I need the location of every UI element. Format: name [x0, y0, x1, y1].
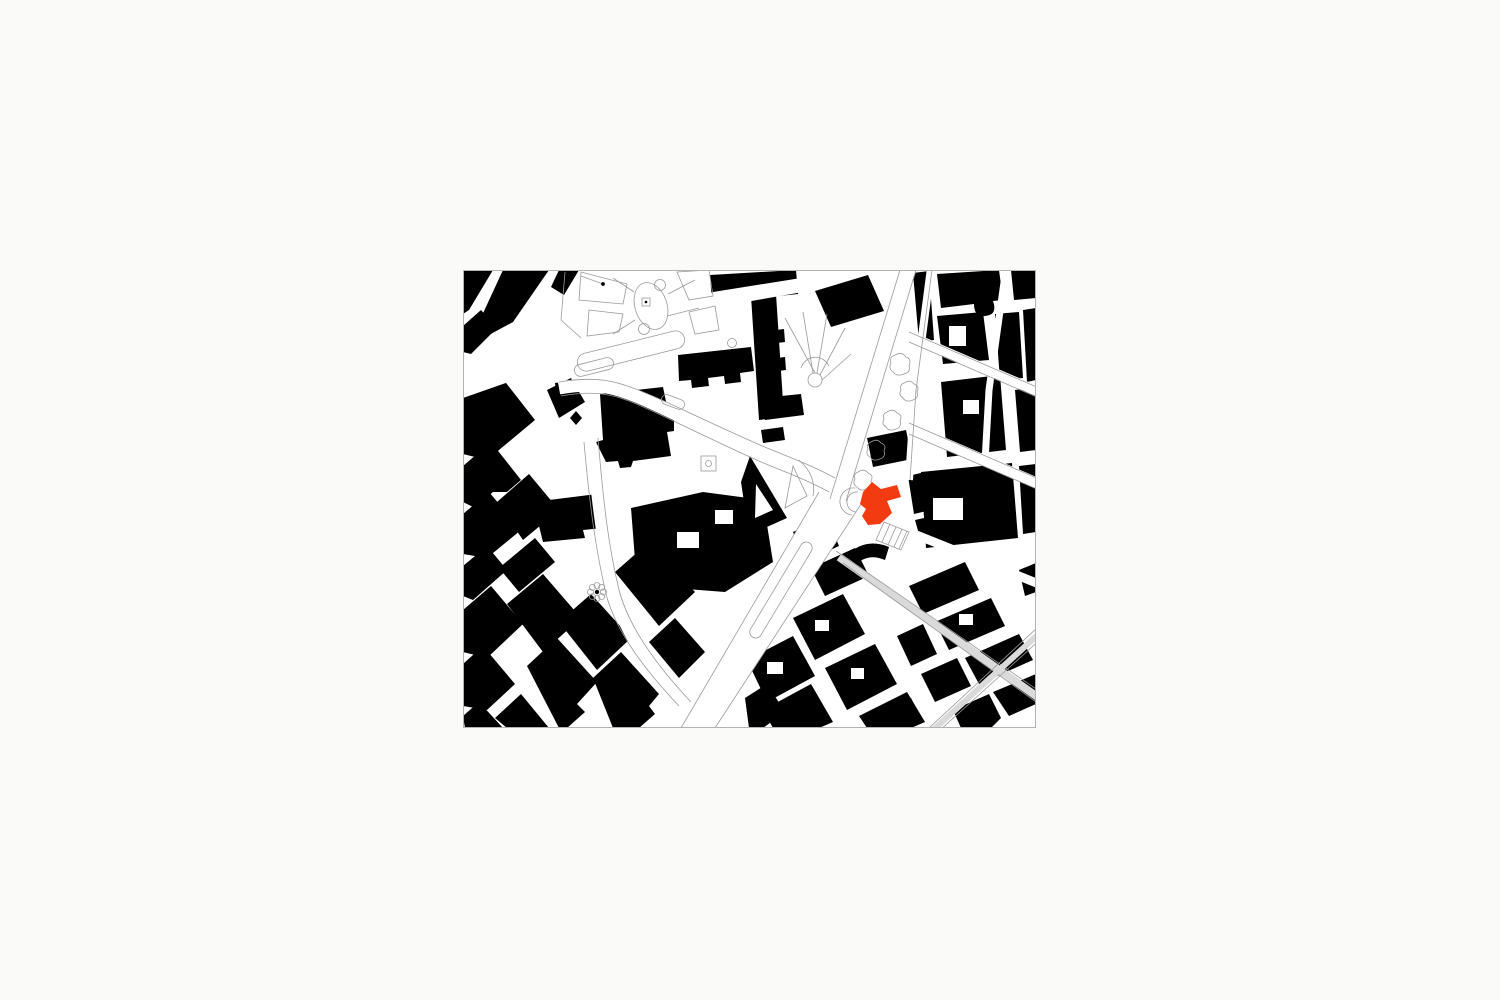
courtyard: [851, 668, 864, 679]
steps-stripe: [882, 524, 890, 542]
site-plan-figure: [463, 270, 1036, 728]
courtyard: [949, 326, 966, 346]
courtyard: [959, 614, 973, 625]
courtyard-fountain: [728, 339, 737, 348]
page-background: { "page": { "background_color": "#fafaf8…: [0, 0, 1500, 1000]
building: [815, 275, 884, 327]
site-plan-map: [463, 270, 1036, 728]
pavilion-outline: [701, 456, 716, 471]
courtyard: [677, 532, 699, 548]
building: [867, 430, 912, 467]
rondel-lobe: [655, 280, 666, 291]
building: [921, 658, 971, 702]
courtyard: [767, 662, 783, 674]
plaza-path: [785, 318, 815, 373]
building: [495, 694, 549, 728]
fountain-center-dot: [595, 590, 599, 594]
park-bed: [579, 272, 627, 304]
building: [761, 427, 785, 443]
building: [678, 347, 754, 388]
building: [937, 270, 1003, 316]
plaza-path: [822, 354, 851, 380]
building: [1015, 387, 1036, 452]
building: [1023, 308, 1036, 382]
park-path: [613, 278, 634, 292]
building: [1011, 270, 1036, 300]
building: [897, 624, 937, 666]
courtyard: [815, 620, 829, 631]
building: [570, 411, 582, 425]
palace-building: [762, 394, 804, 420]
building: [463, 646, 515, 710]
plaza-path: [803, 312, 813, 373]
tree-blob: [883, 410, 901, 430]
garden-bed-short: [573, 356, 615, 377]
fountain-rosette: [588, 583, 607, 602]
plaza-circle: [808, 373, 822, 387]
site-marker-building: [860, 482, 901, 525]
steps-stripe: [888, 527, 896, 545]
tree-blob: [890, 353, 910, 375]
building: [777, 357, 786, 371]
building: [909, 562, 979, 614]
rondel-center-dot: [645, 301, 648, 304]
courtyard: [715, 510, 733, 524]
pavilion-fountain: [706, 461, 712, 467]
park-monument-dot: [601, 282, 605, 286]
courtyard: [933, 498, 963, 520]
building: [776, 329, 785, 343]
junction-plaza: [793, 456, 863, 532]
courtyard: [963, 400, 979, 414]
